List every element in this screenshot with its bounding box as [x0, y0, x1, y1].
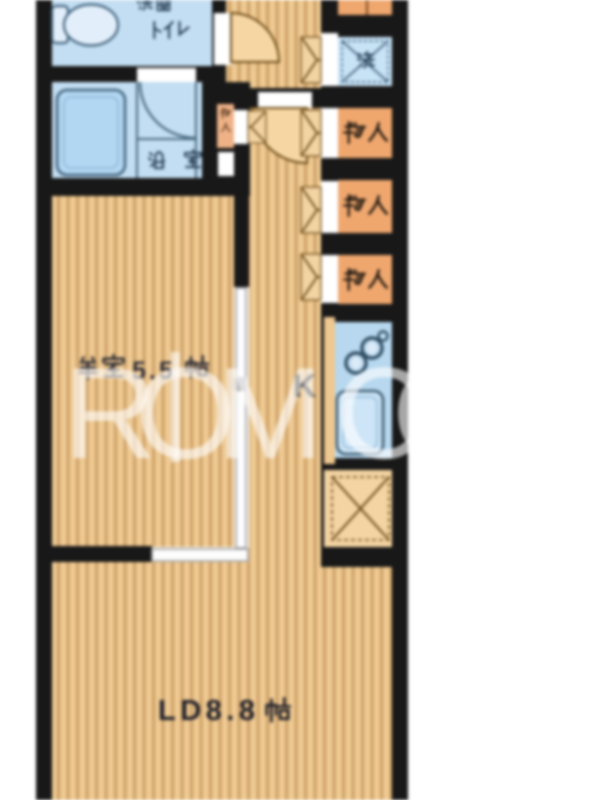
svg-text:M: M — [216, 340, 324, 486]
svg-text:LD8.8: LD8.8 — [158, 695, 259, 727]
svg-text:O: O — [392, 340, 493, 486]
